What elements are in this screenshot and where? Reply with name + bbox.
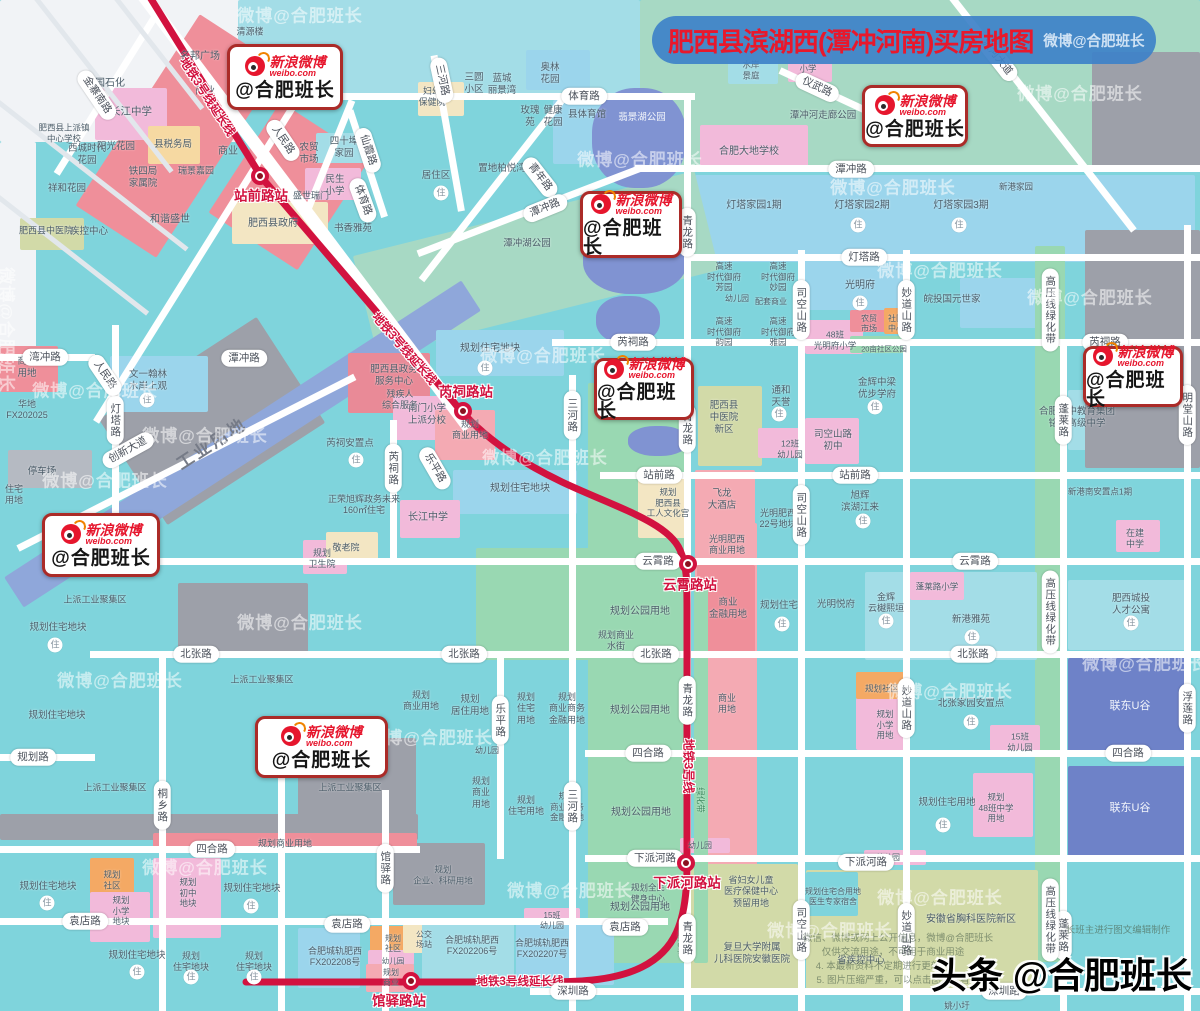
weibo-badge: 新浪微博weibo.com@合肥班长: [862, 85, 968, 147]
weibo-brand-block: 新浪微博weibo.com: [1118, 345, 1174, 368]
map-label: 规划 初中 地块: [179, 877, 196, 909]
watermark: 微博@合肥班长: [57, 667, 183, 692]
map-label: 居住区: [422, 170, 451, 182]
map-note: 长班主进行图文编辑制作: [1066, 922, 1171, 936]
weibo-signal-arc-icon: [1103, 341, 1118, 356]
map-label: 上派工业聚集区: [318, 782, 381, 793]
watermark: 微博@合肥班长: [142, 422, 268, 447]
road: [278, 753, 285, 1011]
map-label: 县体育馆: [568, 109, 606, 121]
map-label: 肥西城投 人才公寓: [1112, 593, 1150, 617]
map-label: 幼儿园: [382, 956, 405, 965]
map-label: 规划 小学 用地: [876, 709, 893, 741]
weibo-brand-text: 新浪微博: [900, 94, 956, 108]
weibo-badge: 新浪微博weibo.com@合肥班长: [594, 358, 694, 420]
weibo-logo-row: 新浪微博weibo.com: [875, 94, 956, 117]
road-label: 深圳路: [550, 983, 596, 1000]
map-label: 合肥城轨肥西 FX202207号: [515, 938, 569, 961]
map-label: 联东U谷: [1110, 802, 1151, 816]
watermark: 微博@合肥班长: [142, 854, 268, 879]
map-label: 绿化带: [695, 787, 706, 813]
weibo-brand-text: 新浪微博: [306, 725, 362, 739]
watermark: 微博@合肥班长: [0, 267, 21, 393]
map-label: 规划 商业商务 金融用地: [549, 692, 585, 726]
weibo-account-text: @合肥班长: [583, 219, 679, 257]
road-label: 北张路: [950, 646, 996, 663]
residential-badge: 住: [349, 453, 364, 468]
weibo-eye-icon: [61, 524, 81, 544]
map-label: 规划住宅地块: [490, 483, 550, 496]
map-label: 规划 48班中学 用地: [979, 792, 1014, 824]
map-label: 华地 FX202025: [6, 399, 48, 422]
weibo-eye-icon: [1093, 346, 1113, 366]
map-label: 规划住宅地块: [223, 883, 280, 895]
map-label: 规划住宅地块: [29, 622, 86, 634]
metro-station-marker: [251, 167, 269, 185]
road-label: 站前路: [636, 467, 682, 484]
road-label: 馆驿路: [377, 844, 394, 893]
weibo-badge: 新浪微博weibo.com@合肥班长: [255, 716, 388, 778]
map-label: 书香雅苑: [334, 223, 372, 235]
map-label: 规划商业 水街: [598, 630, 634, 653]
weibo-eye-icon: [281, 726, 301, 746]
residential-badge: 住: [130, 965, 145, 980]
map-label: 盛世瑞门: [293, 190, 329, 201]
map-label: 上派工业聚集区: [83, 782, 146, 793]
road-label: 四合路: [625, 745, 671, 762]
residential-badge: 住: [851, 218, 866, 233]
map-label: 规划商业用地: [258, 838, 312, 849]
residential-badge: 住: [40, 896, 55, 911]
road-label: 桐乡路: [154, 781, 171, 830]
map-label: 规划 肥西县 工人文化宫: [647, 487, 690, 519]
map-label: 规划住宅地块: [108, 950, 165, 962]
map-title: 肥西县滨湖西(潭冲河南)买房地图: [668, 22, 1033, 59]
map-label: 高速 时代御府 芳园: [707, 261, 741, 293]
map-label: 飞龙 大酒店: [708, 488, 737, 512]
weibo-brand-block: 新浪微博weibo.com: [629, 357, 685, 380]
watermark: 微博@合肥班长: [1027, 284, 1153, 309]
map-label: 铁四局 家属院: [129, 166, 158, 190]
map-zone: [592, 88, 686, 188]
road-label: 袁店路: [62, 913, 108, 930]
road-label: 青龙路: [679, 676, 696, 725]
map-label: 司空山路 初中: [814, 429, 852, 453]
road-label: 司空山路: [793, 485, 810, 545]
corner-credit: 头条 @合肥班长: [931, 947, 1192, 999]
map-label: 玫瑰 苑: [520, 105, 539, 129]
map-label: 三圆 小区: [464, 72, 483, 96]
road-label: 云霄路: [635, 553, 681, 570]
weibo-domain-text: weibo.com: [900, 108, 956, 117]
road-label: 规划路: [10, 749, 56, 766]
road: [390, 420, 397, 565]
weibo-signal-arc-icon: [614, 353, 629, 368]
map-label: 15班 幼儿园: [540, 911, 564, 931]
watermark: 微博@合肥班长: [887, 678, 1013, 703]
road-label: 四合路: [1105, 745, 1151, 762]
weibo-signal-arc-icon: [255, 51, 270, 66]
map-label: 联东U谷: [1110, 700, 1151, 714]
weibo-signal-arc-icon: [292, 721, 307, 736]
residential-badge: 住: [434, 186, 449, 201]
weibo-logo-row: 新浪微博weibo.com: [245, 55, 326, 78]
map-label: 规划公园用地: [610, 606, 670, 619]
map-label: 置地柏悦湾: [478, 163, 526, 175]
map-label: 潭冲湖公园: [503, 238, 551, 250]
map-label: 和谐盛世: [150, 214, 190, 227]
map-label: 阳光花园: [97, 141, 135, 153]
weibo-logo-row: 新浪微博weibo.com: [61, 523, 142, 546]
map-label: 肥西县 中医院 新区: [710, 400, 739, 436]
weibo-brand-block: 新浪微博weibo.com: [616, 193, 672, 216]
watermark: 微博@合肥班长: [507, 877, 633, 902]
watermark: 微博@合肥班长: [42, 467, 168, 492]
map-label: 规划 小学 地块: [112, 895, 129, 927]
road-label: 高压线绿化带: [1042, 571, 1059, 654]
weibo-brand-text: 新浪微博: [616, 193, 672, 207]
weibo-brand-block: 新浪微博weibo.com: [270, 55, 326, 78]
map-label: 潭冲河走廊公园: [790, 110, 857, 122]
road: [798, 250, 805, 1011]
weibo-logo-row: 新浪微博weibo.com: [281, 725, 362, 748]
weibo-account-text: @合肥班长: [51, 549, 151, 568]
station-label: 站前路站: [234, 189, 288, 206]
weibo-domain-text: weibo.com: [1118, 359, 1174, 368]
map-label: 在建 中学: [1126, 528, 1144, 551]
map-label: 商业 用地: [718, 693, 736, 716]
map-label: 规划住宅: [760, 600, 798, 612]
map-label: 规划住宅合用地 医生专家宿舍: [805, 887, 861, 907]
residential-badge: 住: [48, 638, 63, 653]
map-label: 金辉 云樾熙垣: [868, 592, 904, 615]
residential-badge: 住: [853, 296, 868, 311]
map-label: 幼儿园: [688, 841, 712, 851]
weibo-badge: 新浪微博weibo.com@合肥班长: [580, 191, 682, 258]
residential-badge: 住: [952, 218, 967, 233]
map-label: 光明肥西 商业用地: [709, 534, 745, 557]
map-label: 规划 社区: [385, 934, 401, 954]
residential-badge: 住: [856, 514, 871, 529]
weibo-brand-block: 新浪微博weibo.com: [900, 94, 956, 117]
weibo-logo-row: 新浪微博weibo.com: [604, 357, 685, 380]
metro-station-marker: [402, 972, 420, 990]
map-label: 商业: [218, 146, 238, 159]
weibo-brand-block: 新浪微博weibo.com: [306, 725, 362, 748]
real-estate-map: 肥西县滨湖西(潭冲河南)买房地图 微博@合肥班长 头条 @合肥班长 体育路潭冲路…: [0, 0, 1200, 1011]
map-label: 复旦大学附属 儿科医院安徽医院: [714, 942, 790, 966]
map-label: 地铁3号线: [681, 739, 696, 794]
residential-badge: 住: [964, 715, 979, 730]
road-label: 蓬莱路: [1055, 396, 1072, 445]
weibo-domain-text: weibo.com: [629, 371, 685, 380]
road-label: 下派河路: [838, 854, 894, 871]
map-label: 规划 企业、科研用地: [413, 864, 473, 885]
residential-badge: 住: [772, 407, 787, 422]
watermark: 微博@合肥班长: [877, 257, 1003, 282]
weibo-eye-icon: [591, 194, 611, 214]
weibo-domain-text: weibo.com: [616, 207, 672, 216]
map-label: 住宅 用地: [5, 484, 23, 507]
watermark: 微博@合肥班长: [237, 2, 363, 27]
weibo-eye-icon: [604, 359, 624, 379]
watermark: 微博@合肥班长: [877, 884, 1003, 909]
weibo-brand-text: 新浪微博: [86, 523, 142, 537]
map-label: 蓬莱路小学: [916, 582, 959, 593]
map-label: 规划 商业用地: [403, 690, 439, 713]
road-label: 浮莲路: [1179, 684, 1196, 733]
map-label: 幼儿园: [725, 294, 749, 304]
map-label: 南门小学 上派分校: [408, 403, 446, 427]
road-label: 青龙路: [679, 914, 696, 963]
weibo-badge: 新浪微博weibo.com@合肥班长: [1083, 346, 1183, 407]
metro-station-marker: [677, 854, 695, 872]
map-label: 上派工业聚集区: [230, 674, 293, 685]
road-label: 司空山路: [793, 280, 810, 340]
map-label: 瑞景嘉园: [178, 165, 214, 176]
map-label: 疾控中心: [70, 226, 108, 238]
map-label: 奥林 花园: [540, 62, 559, 86]
map-label: 光明肥西 22号地块: [759, 508, 796, 531]
map-label: 配套商业: [755, 297, 787, 307]
map-label: 旭辉 滨湖江来: [841, 490, 879, 514]
map-label: 公交 场站: [416, 930, 432, 950]
map-label: 灯塔家园1期: [726, 200, 782, 213]
weibo-account-text: @合肥班长: [865, 120, 965, 139]
map-label: 芮祠安置点: [326, 438, 374, 450]
weibo-eye-icon: [875, 95, 895, 115]
map-label: 规划住宅地块: [28, 710, 85, 722]
weibo-logo-row: 新浪微博weibo.com: [1093, 345, 1174, 368]
metro-station-marker: [679, 555, 697, 573]
map-label: 灯塔家园2期: [834, 200, 890, 213]
map-zone: [694, 588, 708, 963]
map-label: 农贸 市场: [299, 142, 318, 166]
weibo-signal-arc-icon: [601, 189, 616, 204]
map-label: 商业 金融用地: [709, 597, 747, 621]
weibo-domain-text: weibo.com: [86, 537, 142, 546]
map-label: 四十埠 家园: [330, 136, 359, 160]
map-label: 省妇女儿童 医疗保健中心 预留用地: [724, 875, 778, 909]
map-label: 规划 商业 用地: [472, 776, 490, 810]
map-label: 长江中学: [408, 512, 448, 525]
map-label: 蓝城 丽景湾: [488, 73, 517, 97]
weibo-account-text: @合肥班长: [597, 383, 691, 421]
road-label: 高压线绿化带: [1042, 269, 1059, 352]
map-zone: [1092, 52, 1200, 170]
watermark: 微博@合肥班长: [1082, 650, 1200, 675]
map-label: 规划公园用地: [610, 902, 670, 915]
map-label: 正荣旭辉政务未来 160㎡住宅: [328, 494, 400, 517]
map-label: 金辉中梁 优步学府: [858, 377, 896, 401]
road: [1184, 225, 1191, 1011]
road-label: 湾冲路: [22, 349, 68, 366]
road-label: 乐平路: [492, 696, 509, 745]
map-label: 规划 商业用地: [452, 419, 488, 442]
map-label: 高速 时代御府 雅园: [761, 316, 795, 348]
watermark: 微博@合肥班长: [237, 609, 363, 634]
map-label: 皖投国元世家: [923, 294, 980, 306]
map-label: 15班 幼儿园: [1007, 731, 1033, 752]
weibo-brand-block: 新浪微博weibo.com: [86, 523, 142, 546]
watermark: 微博@合肥班长: [577, 146, 703, 171]
road-label: 北张路: [633, 646, 679, 663]
residential-badge: 住: [775, 617, 790, 632]
weibo-badge: 新浪微博weibo.com@合肥班长: [227, 44, 343, 110]
station-label: 云霄路站: [663, 578, 717, 595]
weibo-brand-text: 新浪微博: [629, 357, 685, 371]
residential-badge: 住: [936, 818, 951, 833]
map-label: 12班 幼儿园: [777, 438, 803, 459]
weibo-signal-arc-icon: [885, 90, 900, 105]
watermark: 微博@合肥班长: [482, 444, 608, 469]
station-label: 芮祠路站: [439, 385, 493, 402]
road-label: 袁店路: [324, 916, 370, 933]
map-label: 规划公园用地: [610, 705, 670, 718]
map-label: 翡景湖公园: [618, 112, 666, 124]
road-label: 潭冲路: [221, 350, 267, 367]
road-label: 三河路: [564, 391, 581, 440]
map-label: 高速 时代御府 妙园: [761, 261, 795, 293]
map-label: 肥西县政府: [248, 218, 298, 231]
title-banner: 肥西县滨湖西(潭冲河南)买房地图 微博@合肥班长: [652, 16, 1156, 64]
weibo-eye-icon: [245, 56, 265, 76]
map-label: 合肥大地学校: [719, 146, 779, 159]
residential-badge: 住: [879, 614, 894, 629]
title-weibo-credit: 微博@合肥班长: [1043, 30, 1144, 51]
road-label: 下派河路: [627, 850, 683, 867]
weibo-domain-text: weibo.com: [270, 69, 326, 78]
map-label: 县税务局: [154, 139, 192, 151]
map-label: 敬老院: [332, 542, 359, 553]
watermark: 微博@合肥班长: [1017, 80, 1143, 105]
map-label: 规划 住宅用地: [508, 795, 544, 818]
map-label: 20亩社区公园: [861, 344, 907, 353]
road-label: 袁店路: [602, 919, 648, 936]
metro-station-marker: [454, 402, 472, 420]
map-label: 规划 住宅 用地: [517, 692, 535, 726]
watermark: 微博@合肥班长: [32, 377, 158, 402]
weibo-logo-row: 新浪微博weibo.com: [591, 193, 672, 216]
map-label: 48班 光明府小学: [814, 329, 857, 350]
residential-badge: 住: [184, 970, 199, 985]
map-label: 新港南安置点1期: [1068, 487, 1132, 498]
map-label: 规划住宅用地: [918, 797, 975, 809]
map-label: 农贸 市场: [861, 314, 877, 334]
map-label: 高速 时代御府 韵园: [707, 316, 741, 348]
road: [497, 654, 504, 859]
weibo-badge: 新浪微博weibo.com@合肥班长: [42, 513, 160, 577]
weibo-brand-text: 新浪微博: [1118, 345, 1174, 359]
station-label: 馆驿路站: [372, 994, 426, 1011]
map-label: 肥西县上派镇 中心学校: [38, 122, 89, 143]
road-label: 三河路: [564, 782, 581, 831]
weibo-signal-arc-icon: [71, 519, 86, 534]
map-label: 合肥城轨肥西 FX202208号: [308, 946, 362, 969]
road: [340, 93, 695, 100]
residential-badge: 住: [965, 630, 980, 645]
map-label: 规划住宅地块: [19, 881, 76, 893]
map-label: 规划 卫生院: [308, 548, 335, 571]
watermark: 微博@合肥班长: [480, 342, 606, 367]
map-label: 通和 天誉: [771, 385, 790, 409]
map-label: 姚小圩: [944, 1001, 970, 1011]
residential-badge: 住: [244, 899, 259, 914]
map-label: 光明府: [845, 280, 875, 293]
map-label: 祥和花园: [48, 183, 86, 195]
map-label: 规划 社区: [103, 869, 120, 890]
map-label: 健康 花园: [543, 105, 562, 129]
road-label: 灯塔路: [107, 396, 124, 445]
road: [635, 165, 1200, 172]
map-note: 4. 本最新资料不定期进行更新: [816, 958, 941, 972]
weibo-account-text: @合肥班长: [235, 81, 335, 100]
road-label: 北张路: [441, 646, 487, 663]
map-label: 光明悦府: [817, 599, 855, 611]
map-label: 安徽省胸科医院新区: [926, 914, 1016, 927]
residential-badge: 住: [247, 970, 262, 985]
map-label: 规划公园用地: [611, 807, 671, 820]
map-label: 灯塔家园3期: [933, 200, 989, 213]
map-label: 合肥城轨肥西 FX202206号: [445, 935, 499, 958]
weibo-account-text: @合肥班长: [272, 751, 372, 770]
road-label: 妙道山路: [898, 280, 915, 340]
road-label: 芮祠路: [610, 334, 656, 351]
watermark: 微博@合肥班长: [830, 174, 956, 199]
road-label: 体育路: [561, 88, 607, 105]
map-label: 规划 居住用地: [451, 694, 489, 718]
map-label: 新港家园: [999, 182, 1033, 193]
station-label: 下派河路站: [653, 876, 721, 893]
map-label: 肥西县中医院: [19, 225, 73, 236]
weibo-account-text: @合肥班长: [1086, 371, 1180, 409]
road-label: 站前路: [832, 467, 878, 484]
map-label: 合肥八中教育集团 铭传高级中学: [1039, 406, 1115, 430]
road-label: 云霄路: [952, 553, 998, 570]
weibo-brand-text: 新浪微博: [270, 55, 326, 69]
map-label: 上派工业聚集区: [63, 594, 126, 605]
road-label: 北张路: [173, 646, 219, 663]
map-label: 规划 商业: [383, 968, 399, 988]
map-label: 新港雅苑: [952, 614, 990, 626]
residential-badge: 住: [1124, 616, 1139, 631]
map-label: 清源楼: [236, 26, 263, 37]
residential-badge: 住: [868, 400, 883, 415]
watermark: 微博@合肥班长: [767, 917, 893, 942]
weibo-domain-text: weibo.com: [306, 739, 362, 748]
road-label: 芮祠路: [385, 444, 402, 493]
